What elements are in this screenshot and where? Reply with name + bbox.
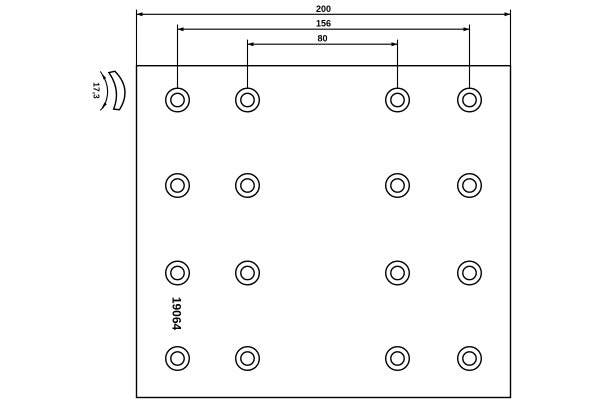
svg-text:200: 200 xyxy=(316,4,331,14)
svg-text:156: 156 xyxy=(316,19,331,29)
svg-text:19064: 19064 xyxy=(170,297,184,331)
svg-text:17,3: 17,3 xyxy=(92,82,102,99)
svg-text:80: 80 xyxy=(317,34,327,44)
